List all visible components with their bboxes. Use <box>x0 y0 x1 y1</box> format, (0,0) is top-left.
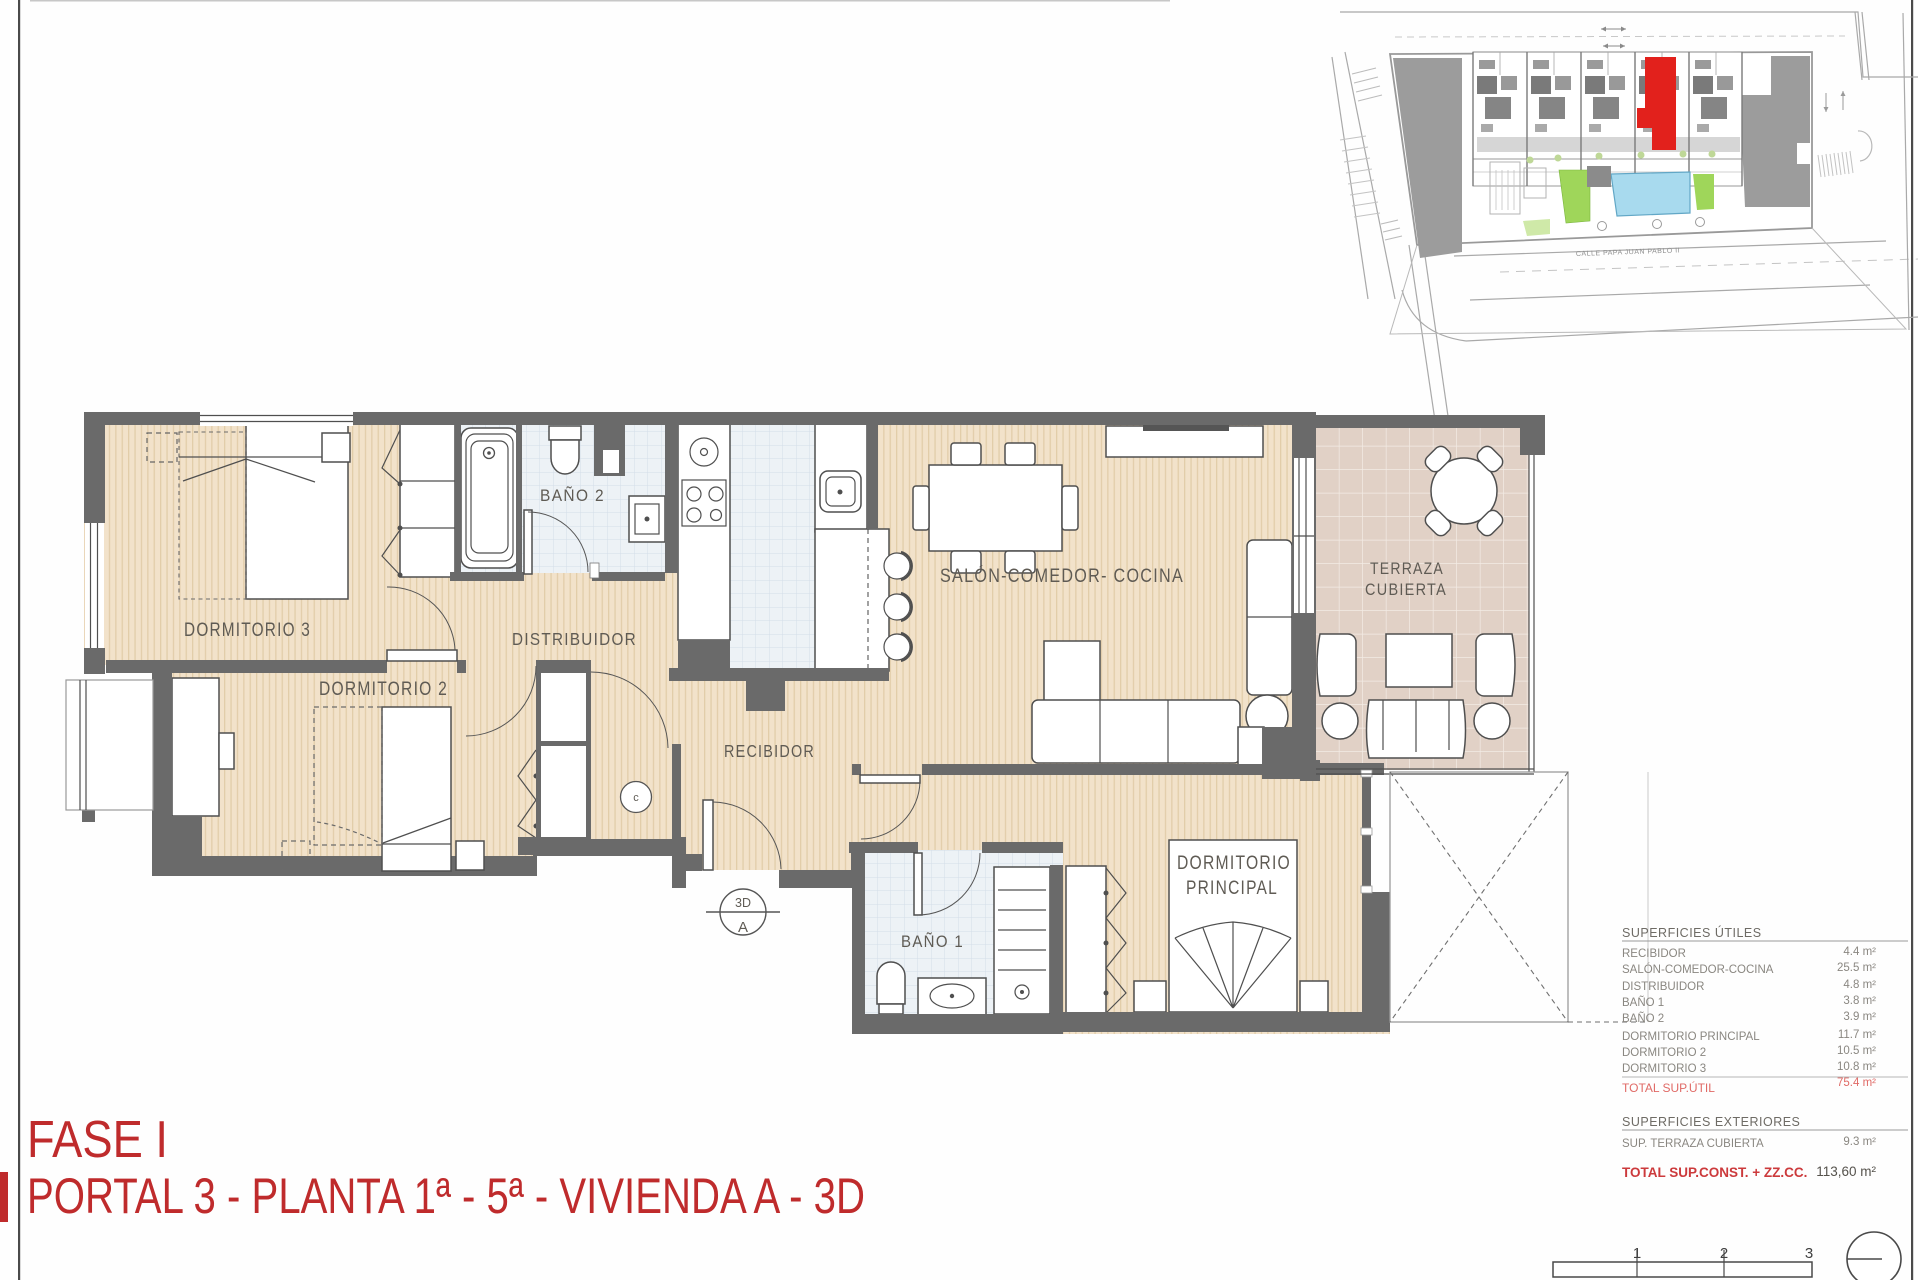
svg-text:DORMITORIO 3: DORMITORIO 3 <box>184 620 311 641</box>
svg-text:TERRAZA: TERRAZA <box>1370 559 1444 578</box>
svg-text:CUBIERTA: CUBIERTA <box>1365 580 1447 599</box>
svg-text:4.4 m²: 4.4 m² <box>1843 946 1876 958</box>
svg-text:2: 2 <box>1720 1245 1728 1262</box>
svg-text:A: A <box>738 919 748 936</box>
svg-text:BAÑO 1: BAÑO 1 <box>901 932 964 951</box>
svg-text:RECIBIDOR: RECIBIDOR <box>1622 948 1686 960</box>
svg-text:SUP. TERRAZA CUBIERTA: SUP. TERRAZA CUBIERTA <box>1622 1138 1764 1150</box>
svg-text:3D: 3D <box>735 896 751 910</box>
svg-text:3: 3 <box>1805 1245 1813 1262</box>
svg-text:BAÑO 2: BAÑO 2 <box>1622 1012 1664 1025</box>
svg-text:9.3 m²: 9.3 m² <box>1843 1136 1876 1148</box>
svg-text:3.9 m²: 3.9 m² <box>1843 1011 1876 1023</box>
svg-text:DORMITORIO PRINCIPAL: DORMITORIO PRINCIPAL <box>1622 1031 1760 1043</box>
svg-text:SALÓN-COMEDOR-COCINA: SALÓN-COMEDOR-COCINA <box>1622 963 1774 976</box>
svg-text:25.5 m²: 25.5 m² <box>1837 962 1876 974</box>
svg-text:FASE I: FASE I <box>27 1111 168 1169</box>
svg-text:4.8 m²: 4.8 m² <box>1843 979 1876 991</box>
svg-text:DORMITORIO 2: DORMITORIO 2 <box>1622 1047 1706 1059</box>
svg-text:TOTAL SUP.CONST. + ZZ.CC.: TOTAL SUP.CONST. + ZZ.CC. <box>1622 1165 1807 1180</box>
svg-text:3.8 m²: 3.8 m² <box>1843 995 1876 1007</box>
svg-text:TOTAL SUP.ÚTIL: TOTAL SUP.ÚTIL <box>1622 1080 1715 1095</box>
svg-text:DISTRIBUIDOR: DISTRIBUIDOR <box>512 629 637 649</box>
svg-text:PRINCIPAL: PRINCIPAL <box>1186 878 1278 899</box>
svg-text:DORMITORIO 3: DORMITORIO 3 <box>1622 1063 1706 1075</box>
svg-text:PORTAL 3 - PLANTA 1ª - 5ª - VI: PORTAL 3 - PLANTA 1ª - 5ª - VIVIENDA A -… <box>27 1168 865 1224</box>
svg-text:1: 1 <box>1633 1245 1641 1262</box>
svg-text:DORMITORIO 2: DORMITORIO 2 <box>319 679 448 700</box>
svg-text:BAÑO 1: BAÑO 1 <box>1622 996 1664 1009</box>
svg-text:DORMITORIO: DORMITORIO <box>1177 853 1291 874</box>
svg-text:10.5 m²: 10.5 m² <box>1837 1045 1876 1057</box>
svg-text:SALÓN-COMEDOR- COCINA: SALÓN-COMEDOR- COCINA <box>940 565 1184 587</box>
svg-text:75.4 m²: 75.4 m² <box>1837 1077 1876 1089</box>
svg-text:SUPERFICIES ÚTILES: SUPERFICIES ÚTILES <box>1622 925 1762 940</box>
svg-text:BAÑO 2: BAÑO 2 <box>540 486 605 505</box>
svg-text:113,60 m²: 113,60 m² <box>1816 1164 1876 1179</box>
svg-text:RECIBIDOR: RECIBIDOR <box>724 741 815 761</box>
svg-text:DISTRIBUIDOR: DISTRIBUIDOR <box>1622 981 1704 993</box>
svg-text:c: c <box>633 792 639 804</box>
svg-text:SUPERFICIES EXTERIORES: SUPERFICIES EXTERIORES <box>1622 1115 1800 1129</box>
svg-text:10.8 m²: 10.8 m² <box>1837 1061 1876 1073</box>
svg-text:11.7 m²: 11.7 m² <box>1838 1029 1876 1041</box>
